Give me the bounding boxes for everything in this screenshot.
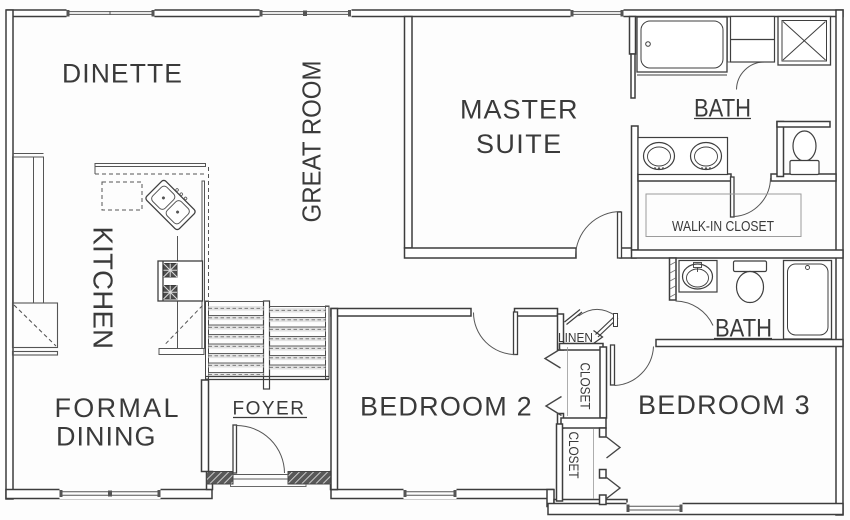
svg-text:MASTER: MASTER xyxy=(460,95,579,125)
svg-text:DINETTE: DINETTE xyxy=(62,59,183,89)
svg-text:BEDROOM 2: BEDROOM 2 xyxy=(360,392,533,422)
svg-text:CLOSET: CLOSET xyxy=(566,432,581,479)
svg-text:BEDROOM 3: BEDROOM 3 xyxy=(638,390,811,420)
svg-text:DINING: DINING xyxy=(56,422,157,452)
svg-text:CLOSET: CLOSET xyxy=(578,363,593,410)
svg-text:KITCHEN: KITCHEN xyxy=(88,227,119,350)
svg-text:WALK-IN CLOSET: WALK-IN CLOSET xyxy=(672,218,774,235)
svg-text:LINEN: LINEN xyxy=(558,331,593,345)
svg-text:SUITE: SUITE xyxy=(476,129,563,159)
svg-text:FOYER: FOYER xyxy=(233,399,306,420)
svg-text:FORMAL: FORMAL xyxy=(55,393,181,423)
svg-text:GREAT ROOM: GREAT ROOM xyxy=(299,61,327,223)
